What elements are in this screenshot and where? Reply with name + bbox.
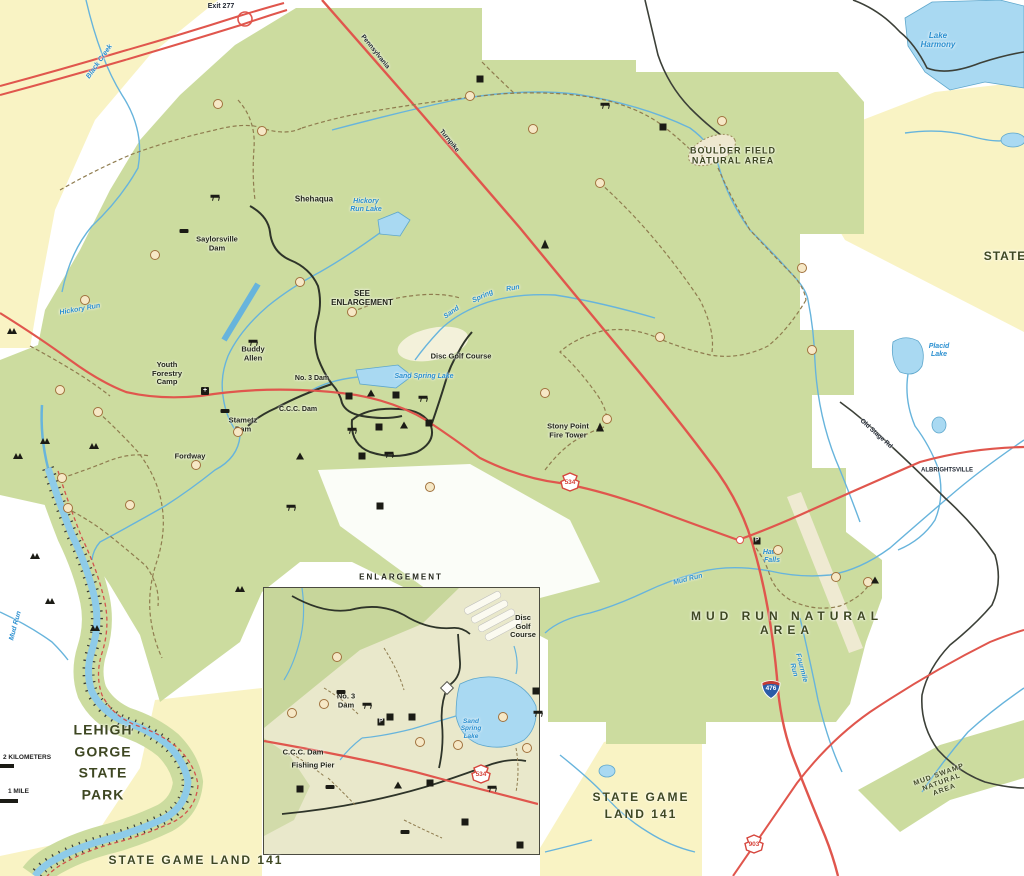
- park-trail-map: 2 KILOMETERS 1 MILE BOULDER FIELD NATURA…: [0, 0, 1024, 876]
- turnpike-interchange: [737, 537, 744, 544]
- scale-mile-bar: [0, 799, 18, 803]
- scale-km-bar: [0, 764, 14, 768]
- inset-map: [264, 588, 538, 853]
- scale-mile-label: 1 MILE: [8, 788, 29, 795]
- scale-bar: 2 KILOMETERS 1 MILE: [0, 748, 80, 810]
- scale-km-label: 2 KILOMETERS: [3, 754, 51, 761]
- enlargement-inset: [263, 587, 540, 855]
